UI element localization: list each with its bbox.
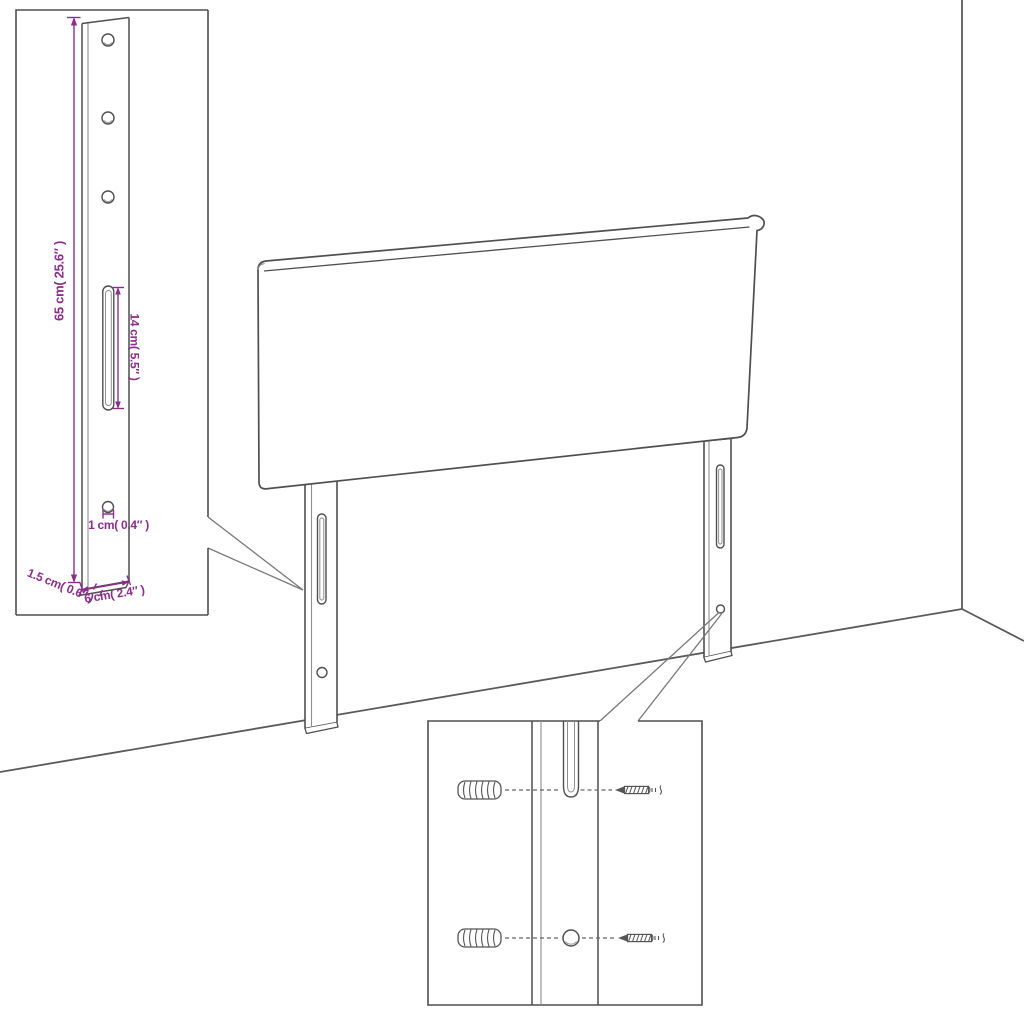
dim-label-leg-height: 65 cm( 25.6″ ): [52, 241, 67, 321]
wall-plug-bottom: [458, 929, 501, 947]
headboard-left-leg: [305, 465, 338, 734]
wall-plug-top: [458, 781, 501, 799]
left-leg-slot: [318, 514, 327, 604]
floor-line-right: [962, 609, 1024, 641]
dim-label-hole-width: 1 cm( 0.4″ ): [88, 518, 149, 532]
left-leg-screw-hole: [317, 668, 327, 678]
headboard-right-leg: [704, 439, 732, 663]
headboard-panel: [258, 216, 764, 489]
mounting-detail-inset: [428, 721, 702, 1005]
right-leg-screw-hole: [717, 605, 725, 613]
right-leg-slot: [717, 465, 725, 548]
diagram-canvas: 65 cm( 25.6″ ) 14 cm( 5.5″ ) 1 cm( 0.4″ …: [0, 0, 1024, 1024]
leg-detail-callout-lines: [208, 517, 303, 590]
dim-label-slot-length: 14 cm( 5.5″ ): [128, 313, 142, 381]
leg-detail-inset: 65 cm( 25.6″ ) 14 cm( 5.5″ ) 1 cm( 0.4″ …: [16, 10, 208, 615]
